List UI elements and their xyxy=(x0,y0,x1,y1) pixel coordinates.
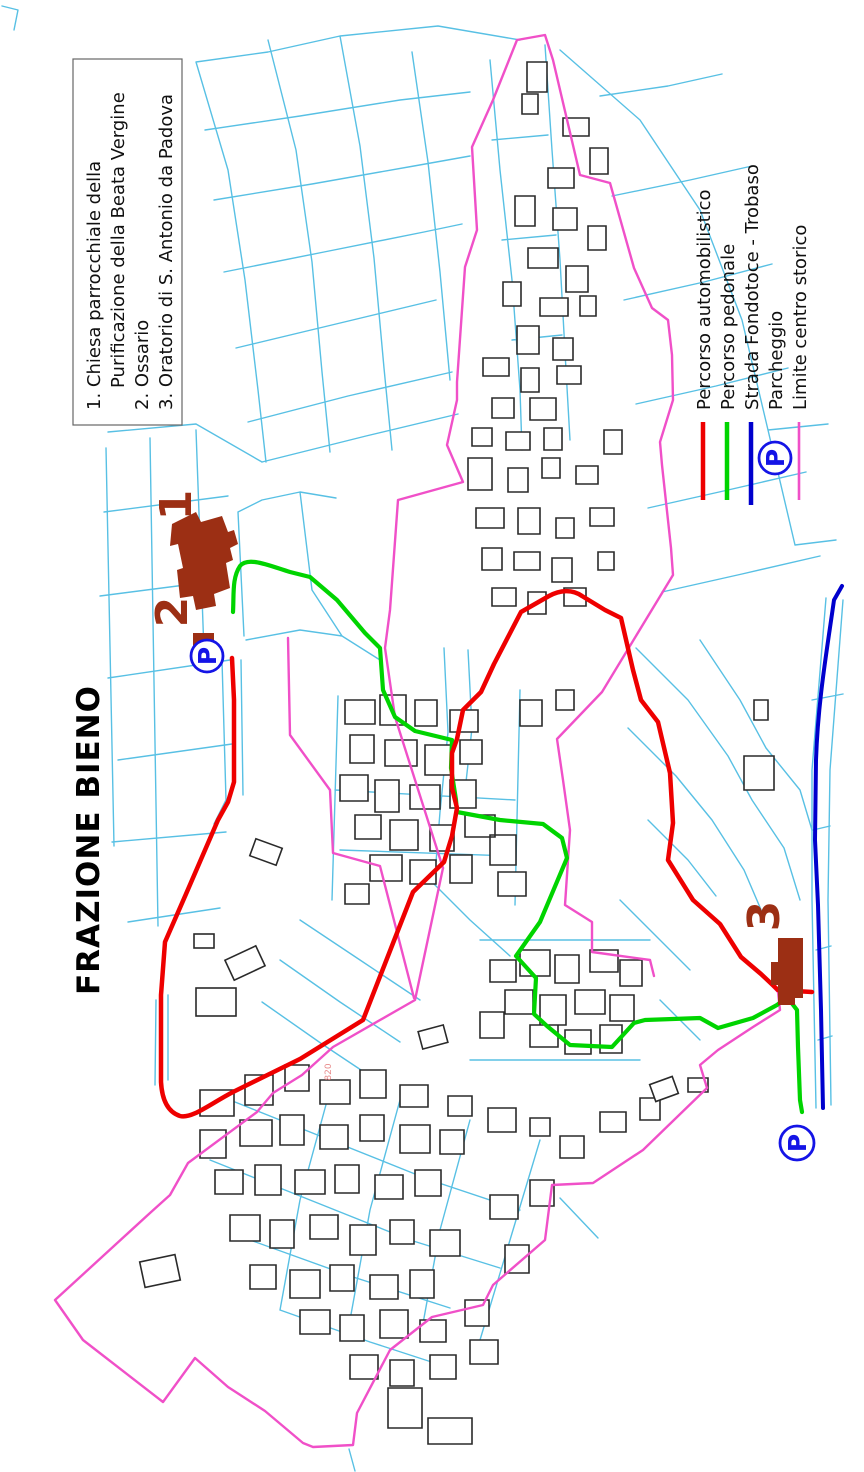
building-isolated xyxy=(225,946,265,980)
parking-symbol-church: P xyxy=(191,640,223,672)
building-isolated xyxy=(140,1255,181,1288)
legend-label-parcheggio: Parcheggio xyxy=(766,311,787,410)
building-isolated xyxy=(418,1025,448,1049)
poi-legend-line-4: 3. Oratorio di S. Antonio da Padova xyxy=(156,94,177,410)
map-page: 1 2 3 820 P P 1. Chiesa parrocchiale del… xyxy=(0,0,864,1472)
building-isolated xyxy=(250,839,282,865)
pedestrian-route xyxy=(233,562,802,1112)
parking-symbol-south: P xyxy=(780,1126,814,1160)
legend-label-strada-fondotoce-trobaso: Strada Fondotoce - Trobaso xyxy=(742,164,763,410)
building-oratorio xyxy=(771,938,803,1005)
legend-label-percorso-automobilistico: Percorso automobilistico xyxy=(694,189,715,410)
legend-parking-symbol: P xyxy=(759,442,791,474)
parcel-code-label: 820 xyxy=(324,1063,334,1080)
legend-label-percorso-pedonale: Percorso pedonale xyxy=(718,244,739,410)
building-isolated xyxy=(650,1076,679,1101)
building-chiesa-parrocchiale xyxy=(170,512,238,610)
poi-legend-line-1: 1. Chiesa parrocchiale della xyxy=(84,161,105,410)
building-isolated xyxy=(196,988,236,1016)
building-isolated xyxy=(194,934,214,948)
marker-number-2: 2 xyxy=(147,597,198,628)
monument-buildings xyxy=(170,512,803,1005)
poi-legend-line-2: Purificazione della Beata Vergine xyxy=(108,92,129,388)
parking-letter: P xyxy=(761,449,790,467)
parking-letter: P xyxy=(783,1134,812,1152)
poi-legend-line-3: 2. Ossario xyxy=(132,320,153,410)
marker-number-1: 1 xyxy=(151,490,202,521)
marker-number-3: 3 xyxy=(739,901,790,932)
parking-letter: P xyxy=(193,647,222,665)
poi-legend-box: 1. Chiesa parrocchiale della Purificazio… xyxy=(73,59,182,425)
buildings-southwest-cluster xyxy=(200,1065,708,1444)
page-title: FRAZIONE BIENO xyxy=(71,685,107,995)
buildings-upper-cluster xyxy=(472,62,608,450)
map-legend: Percorso automobilistico Percorso pedona… xyxy=(694,164,811,505)
map-canvas: 1 2 3 820 P P 1. Chiesa parrocchiale del… xyxy=(0,0,864,1472)
legend-label-limite-centro-storico: Limite centro storico xyxy=(790,225,811,410)
